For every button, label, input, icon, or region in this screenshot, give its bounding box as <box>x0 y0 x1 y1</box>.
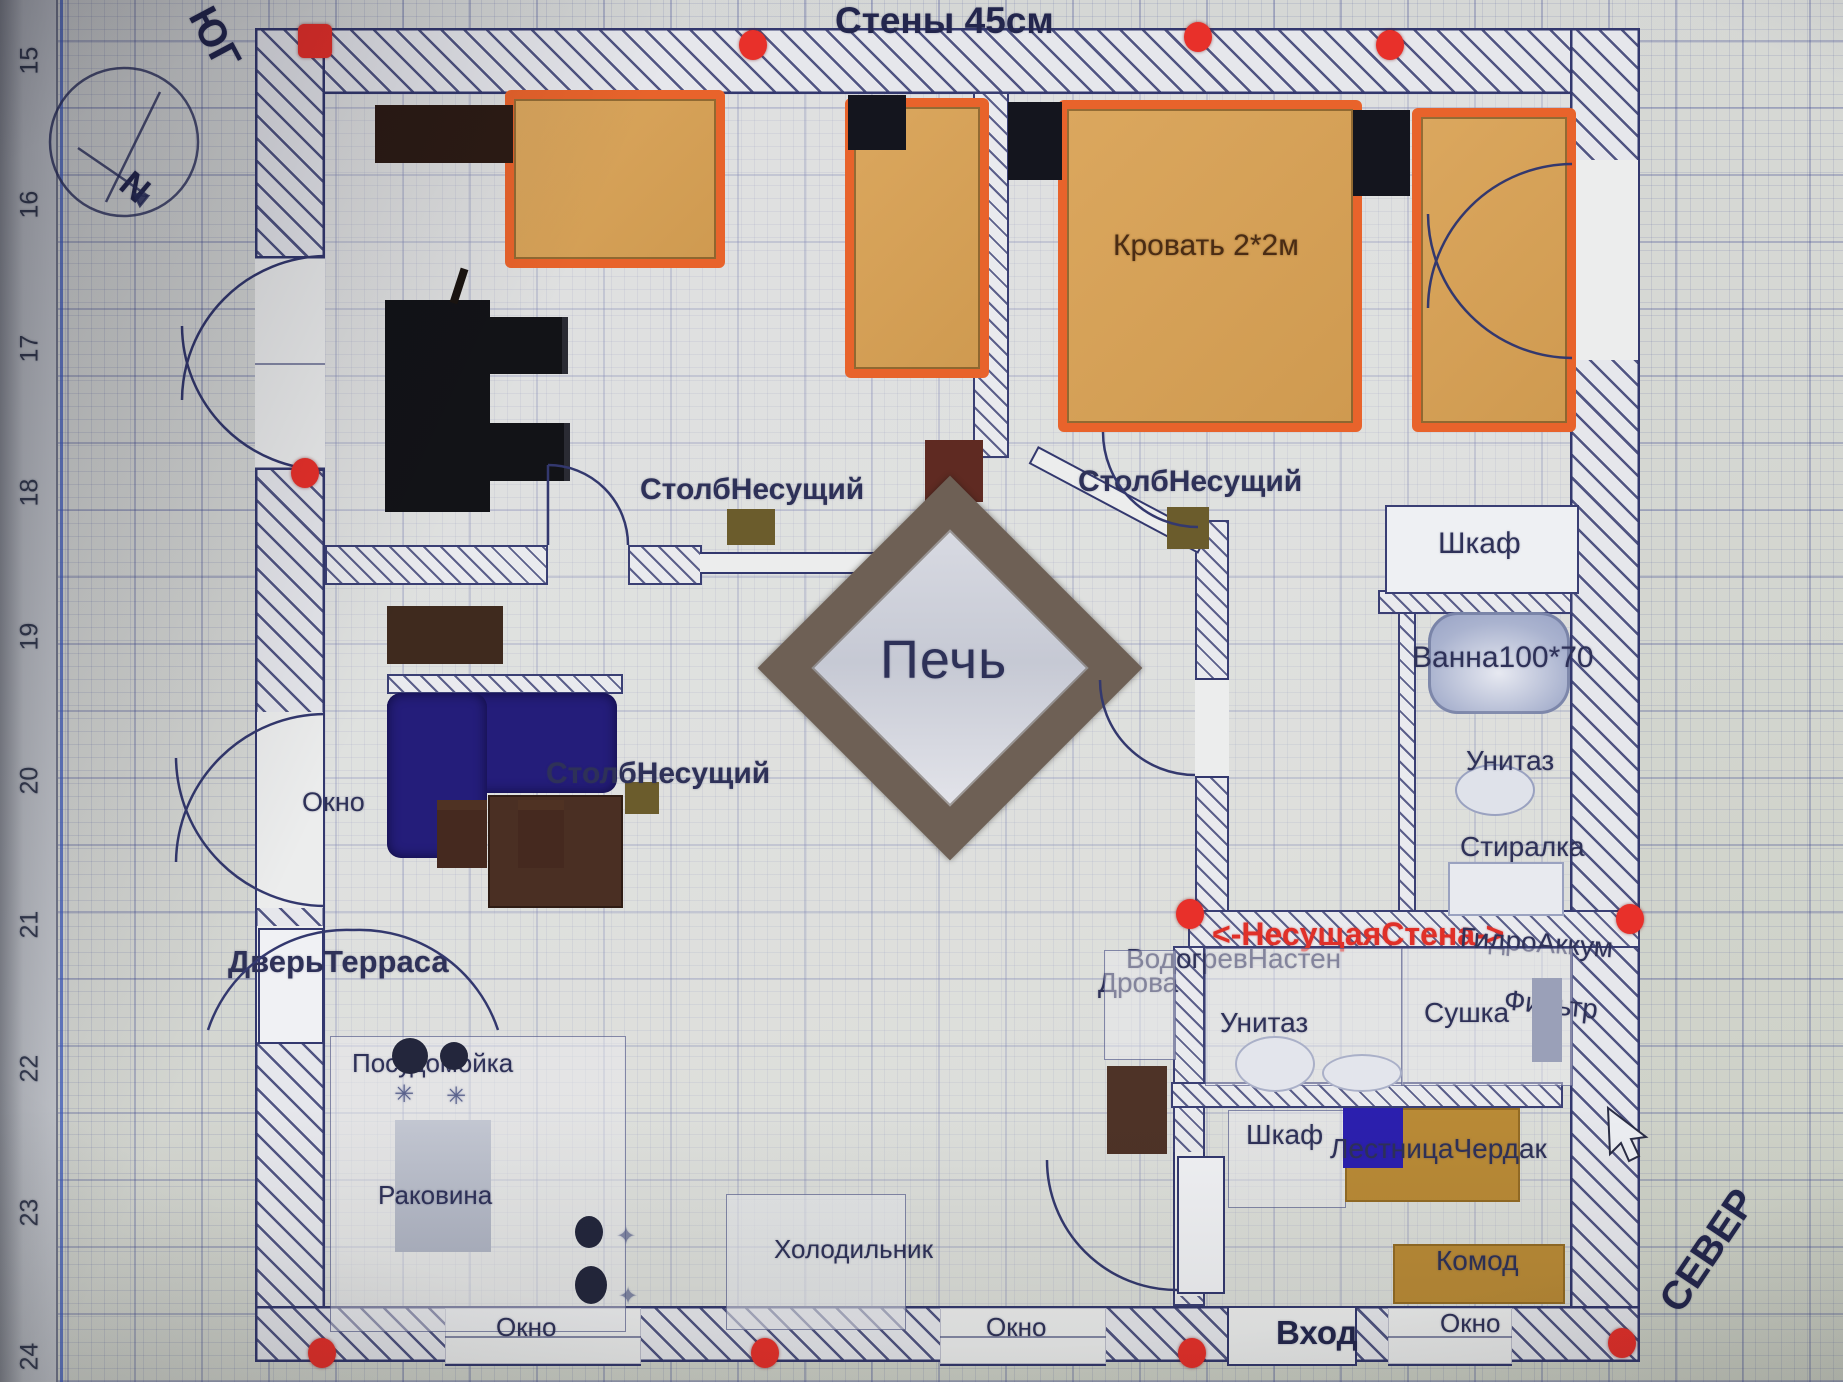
ruler-tick: 21 <box>16 899 45 939</box>
chair-2[interactable] <box>518 800 564 868</box>
attic-stairs-label: ЛестницаЧердак <box>1330 1134 1547 1163</box>
toilet-lower-bowl[interactable] <box>1235 1036 1315 1092</box>
column-label-3: СтолбНесущий <box>546 758 770 790</box>
ruler-tick: 23 <box>16 1187 45 1227</box>
wall-leftroom-a[interactable] <box>325 545 548 585</box>
knob-dot-1 <box>392 1038 428 1074</box>
bed-left-horizontal[interactable] <box>505 90 725 268</box>
desk-black-arm-bottom[interactable] <box>490 423 570 481</box>
drag-handle[interactable] <box>1176 899 1204 929</box>
dishwasher-label: Посудомойка <box>352 1050 513 1077</box>
stove-label: Печь <box>880 632 1007 689</box>
column-label-1: СтолбНесущий <box>640 474 864 506</box>
west-window-label: Окно <box>302 788 365 816</box>
wall-sofa-back <box>387 674 623 694</box>
drag-handle[interactable] <box>1608 1328 1636 1358</box>
ruler-tick: 19 <box>16 611 45 651</box>
ruler-tick: 17 <box>16 323 45 363</box>
drag-handle[interactable] <box>751 1338 779 1368</box>
ruler-tick: 24 <box>16 1331 45 1371</box>
entrance-label: Вход <box>1276 1316 1358 1351</box>
south-window-label-1: Окно <box>496 1314 556 1341</box>
washer-box[interactable] <box>1448 862 1564 916</box>
east-door-opening[interactable] <box>1570 160 1640 360</box>
wardrobe-top-label: Шкаф <box>1438 528 1521 560</box>
nightstand-black-2[interactable] <box>1008 102 1062 180</box>
nightstand-black-3[interactable] <box>1353 110 1410 196</box>
table-behind-sofa[interactable] <box>387 606 503 664</box>
sink-label: Раковина <box>378 1182 492 1209</box>
hall-wardrobe-label: Шкаф <box>1246 1120 1323 1149</box>
sparkle-icon: ✳ <box>394 1080 414 1109</box>
column-marker-2[interactable] <box>1167 507 1209 549</box>
drag-handle[interactable] <box>1616 904 1644 934</box>
south-window-label-3: Окно <box>1440 1310 1500 1337</box>
drag-handle[interactable] <box>1184 22 1212 52</box>
west-window-opening[interactable] <box>255 256 325 470</box>
washbasin-oval[interactable] <box>1322 1054 1402 1092</box>
ruler-tick: 16 <box>16 179 45 219</box>
wall-leftroom-b[interactable] <box>628 545 702 585</box>
vertical-ruler: 15 16 17 18 19 20 21 22 23 24 <box>0 0 58 1382</box>
dryer-label: Сушка <box>1424 998 1509 1027</box>
knob-dot-2 <box>440 1042 468 1070</box>
plan-title: Стены 45см <box>835 2 1054 41</box>
terrace-door-label: ДверьТерраса <box>228 946 449 979</box>
filter-panel[interactable] <box>1532 978 1562 1062</box>
bathtub-label: Ванна100*70 <box>1412 642 1594 674</box>
drag-handle[interactable] <box>739 30 767 60</box>
drag-handle[interactable] <box>291 458 319 488</box>
desk-black-body[interactable] <box>385 300 490 512</box>
drag-handle[interactable] <box>1178 1338 1206 1368</box>
fridge-label: Холодильник <box>774 1236 933 1263</box>
ruler-tick: 22 <box>16 1043 45 1083</box>
sparkle-icon: ✳ <box>446 1082 466 1111</box>
ruler-tick: 20 <box>16 755 45 795</box>
chair-1[interactable] <box>437 800 487 868</box>
firewood-box[interactable] <box>1107 1066 1167 1154</box>
water-heater-box[interactable] <box>1104 950 1176 1060</box>
floorplan-screenshot: 15 16 17 18 19 20 21 22 23 24 Кро <box>0 0 1843 1382</box>
compass-n-letter: N <box>113 164 157 210</box>
toilet-upper-label: Унитаз <box>1466 746 1554 775</box>
column-marker-1[interactable] <box>727 509 775 545</box>
drag-handle[interactable] <box>298 24 332 58</box>
burner-dot-1 <box>575 1216 603 1248</box>
corridor-door-opening[interactable] <box>1195 678 1229 778</box>
north-compass-label: СЕВЕР <box>1652 1182 1764 1320</box>
ruler-tick: 15 <box>16 35 45 75</box>
nightstand-black-1[interactable] <box>848 95 906 150</box>
hall-door-leaf[interactable] <box>1177 1156 1225 1294</box>
south-window-label-2: Окно <box>986 1314 1046 1341</box>
dresser-label: Комод <box>1436 1246 1518 1275</box>
south-compass-label: ЮГ <box>181 0 248 76</box>
toilet-lower-label: Унитаз <box>1220 1008 1308 1037</box>
bed-big-2x2[interactable] <box>1058 100 1362 432</box>
wall-west[interactable] <box>255 28 325 1360</box>
drag-handle[interactable] <box>308 1338 336 1368</box>
shelf-dark[interactable] <box>375 105 513 163</box>
burner-dot-2 <box>575 1266 607 1304</box>
column-label-2: СтолбНесущий <box>1078 466 1302 498</box>
bed-big-label: Кровать 2*2м <box>1113 230 1299 262</box>
sparkle-icon: ✦ <box>618 1282 638 1311</box>
ruler-tick: 18 <box>16 467 45 507</box>
washer-label: Стиралка <box>1460 832 1585 861</box>
desk-black-arm-top[interactable] <box>490 317 568 374</box>
ruler-edge-line <box>60 0 63 1382</box>
bed-right-small[interactable] <box>1412 108 1576 432</box>
drag-handle[interactable] <box>1376 30 1404 60</box>
sparkle-icon: ✦ <box>616 1222 636 1251</box>
